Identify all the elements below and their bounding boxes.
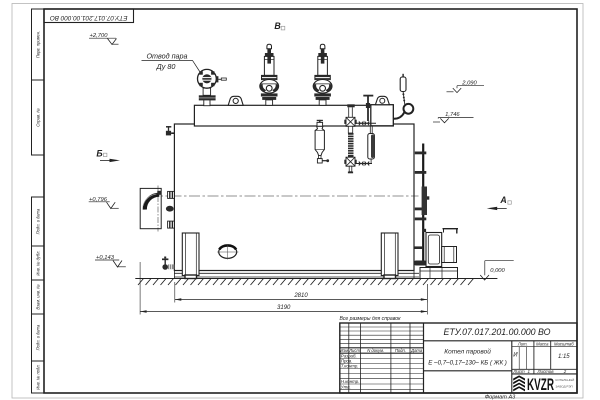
svg-text:Лист: Лист <box>512 369 525 374</box>
svg-text:KVZR: KVZR <box>527 376 554 394</box>
svg-text:Взам. инв. №: Взам. инв. № <box>36 284 41 310</box>
svg-text:Листов: Листов <box>537 369 555 374</box>
svg-text:Лит.: Лит. <box>517 341 528 346</box>
svg-text:ЗАВОД РЭП: ЗАВОД РЭП <box>556 385 573 389</box>
svg-text:2810: 2810 <box>293 293 308 299</box>
svg-text:Т.контр.: Т.контр. <box>341 364 359 369</box>
svg-text:Перв. примен.: Перв. примен. <box>36 31 41 58</box>
svg-text:Масса: Масса <box>536 341 549 346</box>
svg-text:Инв. № дубл.: Инв. № дубл. <box>36 250 41 275</box>
svg-text:Б: Б <box>96 149 102 159</box>
svg-text:0,000: 0,000 <box>490 268 505 274</box>
svg-text:N докум.: N докум. <box>367 348 384 353</box>
svg-text:Подп.: Подп. <box>395 348 406 353</box>
svg-text:Масштаб: Масштаб <box>554 341 574 346</box>
svg-text:Инв. № подл.: Инв. № подл. <box>36 364 41 389</box>
svg-text:ЕТУ.07.017.201.00.000 ВО: ЕТУ.07.017.201.00.000 ВО <box>50 14 128 21</box>
svg-text:Ду 80: Ду 80 <box>156 62 176 71</box>
svg-text:Котел паровой: Котел паровой <box>444 348 491 356</box>
svg-text:ЕТУ.07.017.201.00.000 ВО: ЕТУ.07.017.201.00.000 ВО <box>444 327 551 337</box>
svg-text:Подп. и дата: Подп. и дата <box>36 324 41 350</box>
svg-text:Отвод пара: Отвод пара <box>146 52 187 61</box>
svg-text:КОТЕЛЬНЫЙ: КОТЕЛЬНЫЙ <box>556 378 575 382</box>
svg-text:Е –0,7–0,17–130– КБ ( ЖК ): Е –0,7–0,17–130– КБ ( ЖК ) <box>428 360 507 367</box>
svg-text:3190: 3190 <box>277 305 291 311</box>
svg-text:Справ. №: Справ. № <box>36 108 41 127</box>
svg-text:А: А <box>499 195 506 205</box>
svg-text:Подп. и дата: Подп. и дата <box>36 208 41 234</box>
svg-text:Дата: Дата <box>410 348 423 353</box>
svg-text:В: В <box>274 21 281 31</box>
svg-text:1,746: 1,746 <box>445 112 460 118</box>
svg-text:Все размеры для справок: Все размеры для справок <box>339 316 401 322</box>
svg-text:Утв.: Утв. <box>341 384 351 389</box>
svg-text:И: И <box>513 353 518 359</box>
svg-text:Лист: Лист <box>348 348 360 353</box>
svg-text:Изм: Изм <box>340 348 348 353</box>
svg-text:2: 2 <box>563 369 567 374</box>
svg-text:1:15: 1:15 <box>558 354 570 360</box>
svg-text:Формат А3: Формат А3 <box>485 395 516 400</box>
